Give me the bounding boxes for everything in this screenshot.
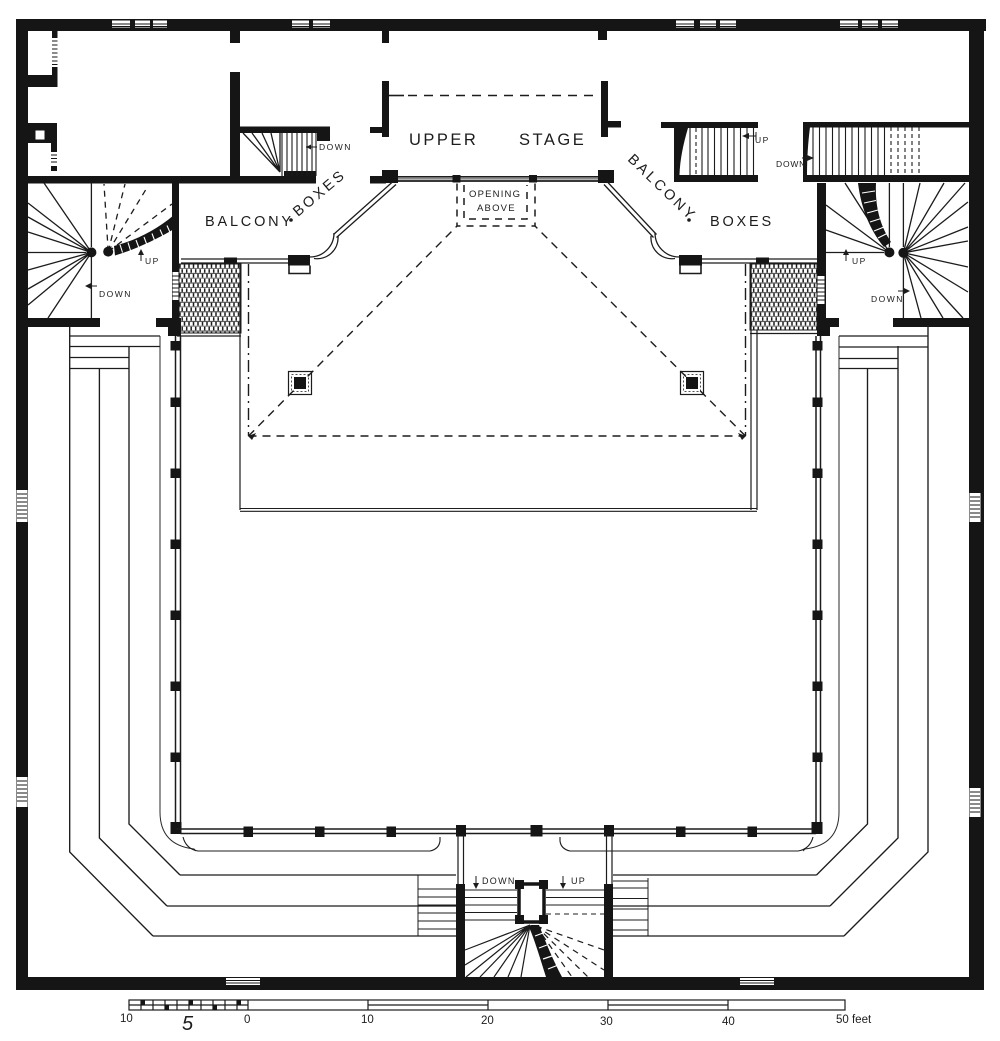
svg-text:DOWN: DOWN	[871, 294, 904, 304]
svg-text:40: 40	[722, 1016, 735, 1028]
svg-text:20: 20	[481, 1015, 494, 1027]
svg-text:OPENING: OPENING	[469, 189, 521, 200]
svg-text:UPPER: UPPER	[409, 131, 478, 149]
svg-text:ABOVE: ABOVE	[477, 203, 516, 214]
svg-text:DOWN: DOWN	[319, 142, 352, 152]
svg-text:BOXES: BOXES	[710, 214, 774, 230]
svg-text:50 feet: 50 feet	[836, 1014, 872, 1026]
svg-text:STAGE: STAGE	[519, 131, 586, 149]
svg-text:10: 10	[120, 1013, 133, 1025]
svg-text:DOWN: DOWN	[776, 159, 806, 169]
svg-text:0: 0	[244, 1014, 250, 1026]
svg-text:UP: UP	[571, 876, 586, 886]
svg-text:UP: UP	[145, 256, 160, 266]
svg-text:UP: UP	[755, 135, 770, 145]
svg-text:10: 10	[361, 1014, 374, 1026]
svg-text:30: 30	[600, 1016, 613, 1028]
svg-text:BALCONY: BALCONY	[205, 214, 294, 230]
svg-text:DOWN: DOWN	[482, 876, 516, 886]
svg-text:DOWN: DOWN	[99, 289, 132, 299]
svg-text:UP: UP	[852, 256, 867, 266]
svg-text:5: 5	[182, 1013, 194, 1035]
